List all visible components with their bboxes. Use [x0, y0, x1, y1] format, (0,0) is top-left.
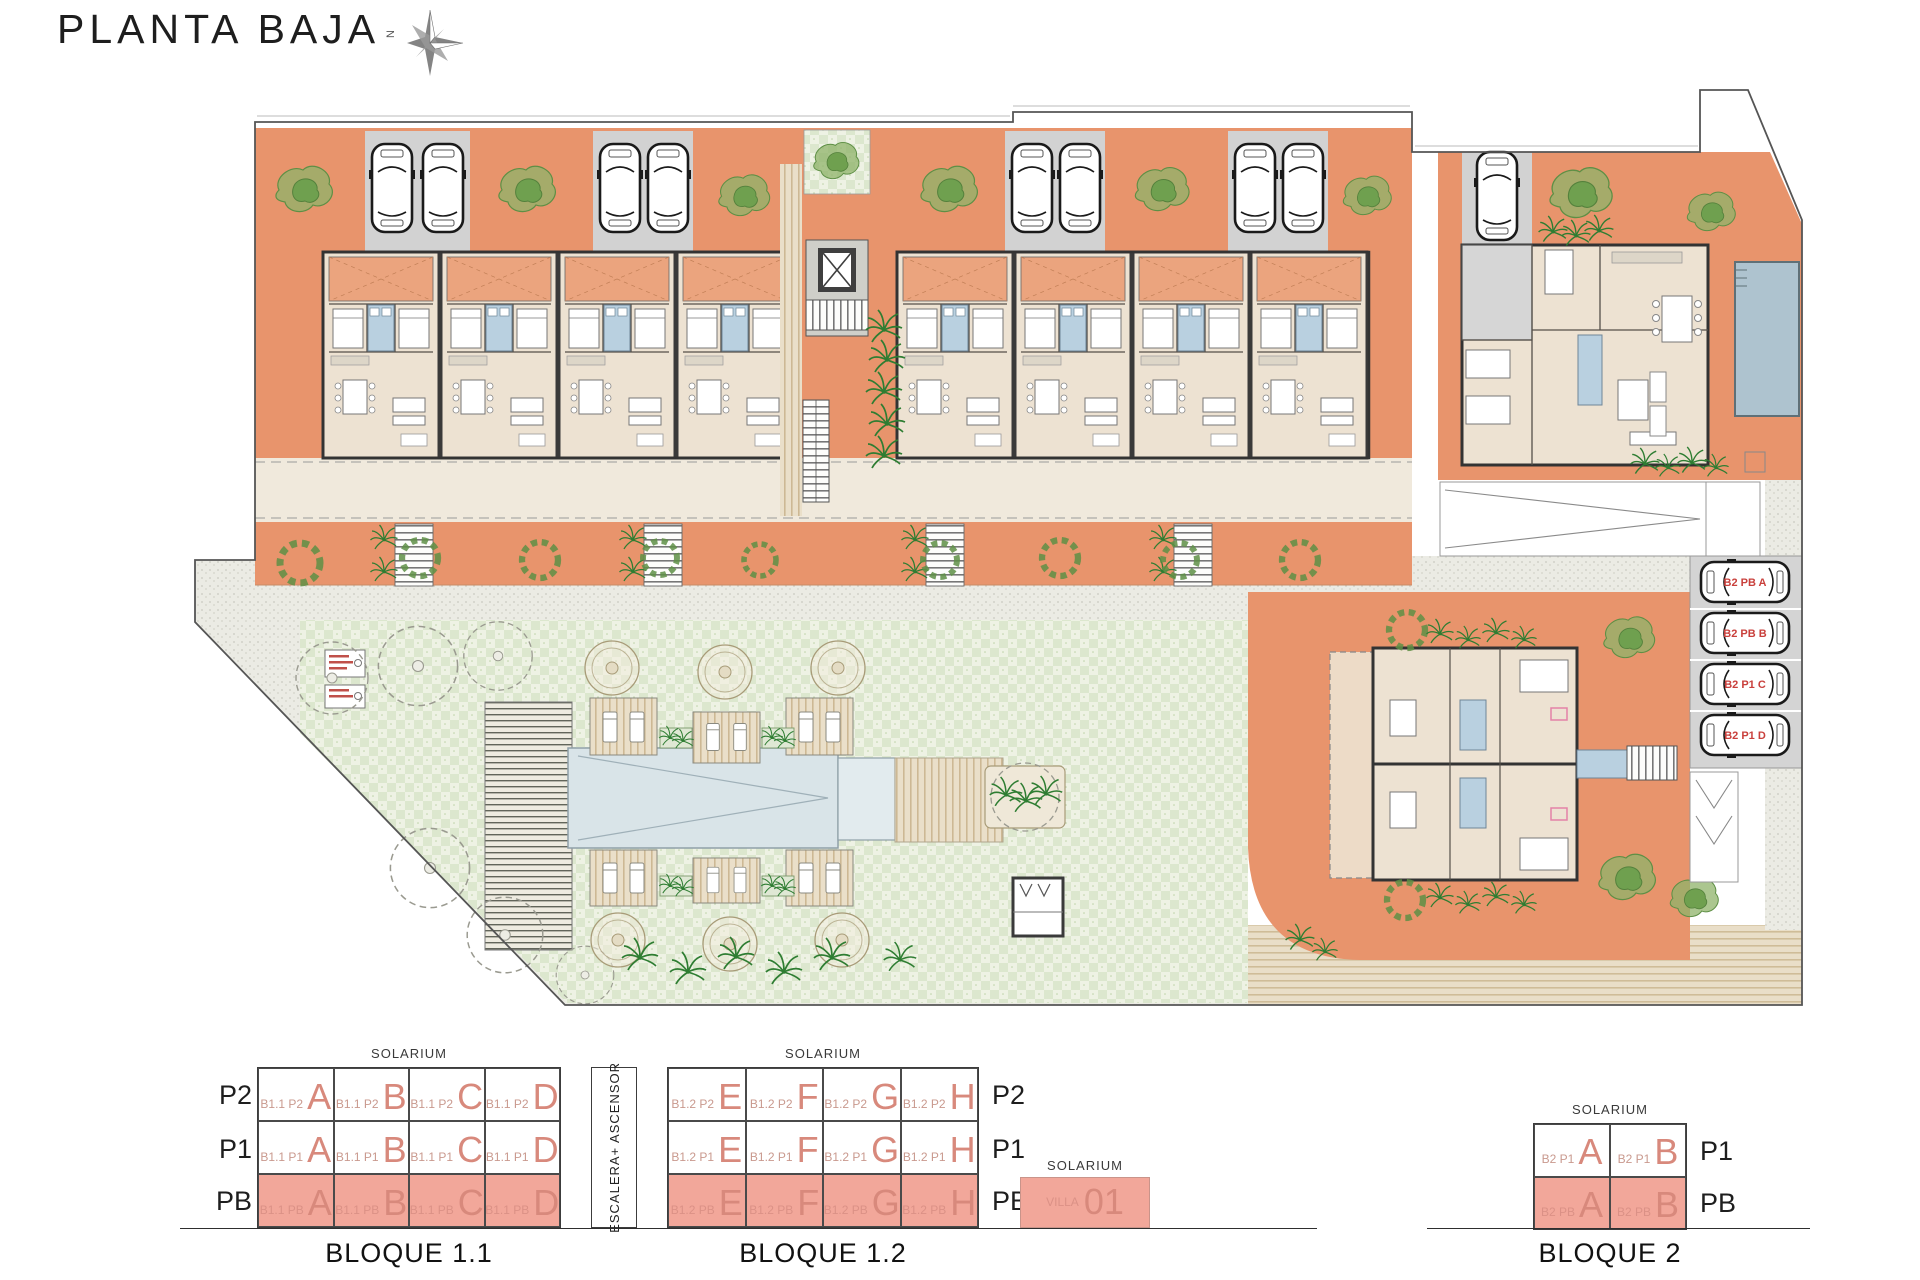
unit-cell[interactable]: B1.1 P2B — [334, 1068, 410, 1121]
unit-cell[interactable]: B1.2 P2H — [901, 1068, 979, 1121]
legend-table-bloque-1-2: B1.2 P2E B1.2 P2F B1.2 P2G B1.2 P2H B1.2… — [667, 1067, 979, 1228]
floorplan-page: PLANTA BAJA N — [0, 0, 1920, 1280]
unit-cell[interactable]: B2 P1A — [1534, 1124, 1610, 1177]
unit-cell[interactable]: B2 P1B — [1610, 1124, 1686, 1177]
unit-cell-highlighted[interactable]: B1.2 PBH — [901, 1174, 979, 1227]
block-name-bloque-1-2: BLOQUE 1.2 — [667, 1238, 979, 1269]
block-name-bloque-2: BLOQUE 2 — [1533, 1238, 1687, 1269]
driveway — [255, 458, 1412, 522]
unit-cell-highlighted[interactable]: B1.1 PBA — [258, 1174, 334, 1227]
building-bloque-1-2 — [897, 252, 1369, 458]
pool-wc-hut — [1013, 878, 1063, 936]
unit-cell[interactable]: B1.1 P1D — [485, 1121, 561, 1174]
floor-label-p1: P1 — [1700, 1136, 1746, 1167]
unit-cell[interactable]: B1.2 P1E — [668, 1121, 746, 1174]
bloque2-parking: B2 PB A B2 PB B B2 P1 C B2 P1 D — [1690, 556, 1802, 768]
legend-table-bloque-1-1: B1.1 P2A B1.1 P2B B1.1 P2C B1.1 P2D B1.1… — [257, 1067, 561, 1228]
unit-cell[interactable]: B1.2 P1G — [823, 1121, 901, 1174]
unit-cell[interactable]: B1.2 P1F — [746, 1121, 824, 1174]
unit-cell[interactable]: B1.1 P2C — [409, 1068, 485, 1121]
parking-space-label: B2 P1 D — [1724, 730, 1766, 742]
floor-label-pb: PB — [206, 1186, 252, 1217]
site-plan: B2 PB A B2 PB B B2 P1 C B2 P1 D — [0, 0, 1920, 1050]
floor-label-p2: P2 — [992, 1080, 1038, 1111]
unit-cell[interactable]: B1.2 P1H — [901, 1121, 979, 1174]
parking-exit-stair — [1690, 772, 1738, 882]
legend-table-bloque-2: B2 P1A B2 P1B B2 PBA B2 PBB — [1533, 1123, 1687, 1230]
unit-cell-highlighted[interactable]: B1.1 PBC — [409, 1174, 485, 1227]
solarium-label-villa: SOLARIUM — [1020, 1158, 1150, 1173]
building-bloque-1-1 — [323, 252, 795, 458]
entry-gap — [1412, 112, 1438, 482]
unit-cell[interactable]: B1.2 P2G — [823, 1068, 901, 1121]
unit-cell-highlighted[interactable]: B2 PBA — [1534, 1177, 1610, 1230]
floor-label-p1: P1 — [206, 1134, 252, 1165]
legend-baseline-left — [180, 1228, 1317, 1229]
bloque2-pool — [1735, 262, 1799, 416]
unit-cell-highlighted[interactable]: B1.2 PBF — [746, 1174, 824, 1227]
floor-label-pb: PB — [1700, 1188, 1746, 1219]
parking-space-label: B2 PB B — [1723, 628, 1766, 640]
garage-ramp — [1440, 482, 1760, 556]
block-name-bloque-1-1: BLOQUE 1.1 — [257, 1238, 561, 1269]
legend-baseline-right — [1427, 1228, 1810, 1229]
pergola-trellis — [485, 702, 572, 950]
unit-cell-highlighted[interactable]: B1.2 PBG — [823, 1174, 901, 1227]
unit-cell[interactable]: B1.1 P1C — [409, 1121, 485, 1174]
parking-space-label: B2 PB A — [1724, 577, 1767, 589]
unit-cell-highlighted[interactable]: B1.1 PBB — [334, 1174, 410, 1227]
building-bloque-2-north — [1462, 245, 1708, 465]
legend-stair-elevator: ESCALERA+ ASCENSOR — [591, 1067, 637, 1228]
unit-cell[interactable]: B1.1 P2D — [485, 1068, 561, 1121]
unit-cell[interactable]: B1.1 P2A — [258, 1068, 334, 1121]
solarium-label-b12: SOLARIUM — [667, 1046, 979, 1061]
unit-cell[interactable]: B1.2 P2E — [668, 1068, 746, 1121]
unit-cell-highlighted[interactable]: B1.2 PBE — [668, 1174, 746, 1227]
solarium-label-b2: SOLARIUM — [1533, 1102, 1687, 1117]
floor-label-p2: P2 — [206, 1080, 252, 1111]
unit-cell[interactable]: B1.2 P2F — [746, 1068, 824, 1121]
unit-cell[interactable]: B1.1 P1A — [258, 1121, 334, 1174]
solarium-label-b11: SOLARIUM — [257, 1046, 561, 1061]
parking-space-label: B2 P1 C — [1724, 679, 1766, 691]
jacuzzi-planter — [985, 763, 1065, 831]
unit-cell-highlighted[interactable]: B2 PBB — [1610, 1177, 1686, 1230]
legend-villa-01[interactable]: VILLA 01 — [1020, 1177, 1150, 1228]
unit-cell-highlighted[interactable]: B1.1 PBD — [485, 1174, 561, 1227]
unit-cell[interactable]: B1.1 P1B — [334, 1121, 410, 1174]
